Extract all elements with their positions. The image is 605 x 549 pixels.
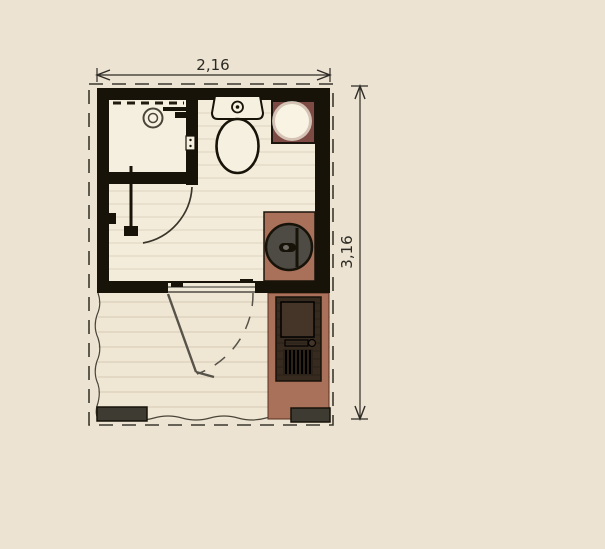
shower-valve-dot-bottom <box>189 145 191 147</box>
wall-bottom-left <box>97 281 168 293</box>
step-right <box>291 408 330 422</box>
wall-left <box>97 88 109 293</box>
outdoor-unit-vent-slats <box>286 350 310 374</box>
shower-door-handle <box>124 226 138 236</box>
shower-shelf-block <box>175 112 188 118</box>
washing-machine-handle-dot <box>283 245 289 250</box>
shower-partition-horizontal <box>97 172 198 184</box>
wall-right <box>315 88 330 293</box>
washbasin <box>272 101 312 141</box>
door-tick-right <box>240 279 253 283</box>
shower-valve-dot-top <box>189 139 191 141</box>
washing-machine <box>266 224 312 270</box>
outdoor-unit-panel <box>281 302 314 337</box>
washbasin-bowl <box>275 104 309 138</box>
toilet <box>212 96 263 173</box>
outdoor-unit <box>276 297 321 381</box>
dimension-height-label: 3,16 <box>338 235 356 268</box>
dimension-width-label: 2,16 <box>196 56 229 74</box>
outdoor-unit-knob <box>309 340 316 347</box>
floor-plan-drawing: 2,16 3,16 <box>0 0 605 549</box>
toilet-bowl <box>217 119 259 173</box>
shower-drain-icon <box>144 109 163 128</box>
toilet-flush-dot <box>236 105 240 109</box>
wall-top <box>97 88 330 100</box>
wall-bottom-right <box>255 281 330 293</box>
wall-pipe-tick <box>108 213 116 224</box>
door-tick-left <box>171 283 183 287</box>
shower-shelf <box>163 107 187 111</box>
shower-valve <box>186 136 195 150</box>
step-left <box>97 407 147 421</box>
floor-plan-canvas: 2,16 3,16 <box>0 0 605 549</box>
